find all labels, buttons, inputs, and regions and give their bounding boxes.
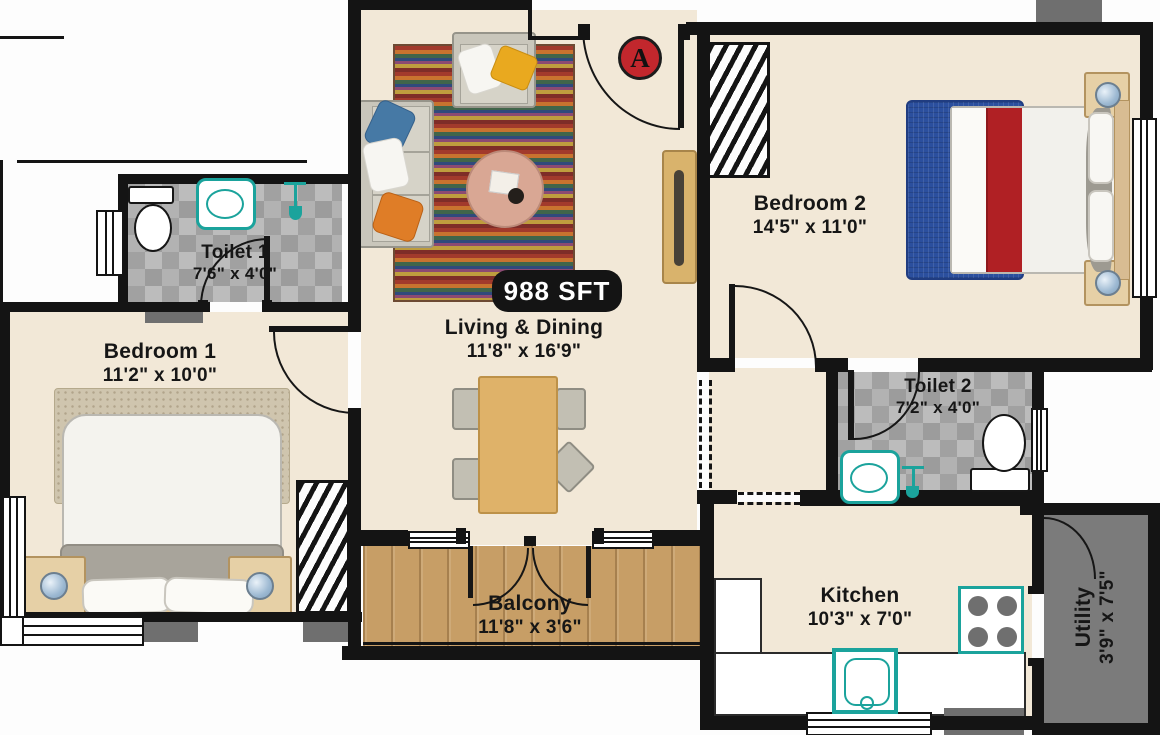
floor-plan: Toilet 1 7'6" x 4'0" Bedroom 1 11'2" x 1… [0, 0, 1160, 735]
bedroom2-window [1132, 118, 1157, 298]
boundary-line [17, 160, 307, 163]
passage-dashed-line [709, 380, 712, 488]
living-top-wall [350, 0, 532, 10]
foyer-floor [709, 368, 829, 492]
top-wall [686, 22, 1152, 35]
dining-table [478, 376, 558, 514]
balcony-door-post [456, 528, 466, 544]
entry-door-post [678, 24, 690, 40]
lamp-icon [1095, 82, 1121, 108]
toilet-bowl-icon [982, 414, 1026, 472]
shower-stem [294, 182, 297, 208]
bedroom1-label: Bedroom 1 11'2" x 10'0" [40, 340, 280, 387]
lamp-icon [1095, 270, 1121, 296]
room-dims: 7'2" x 4'0" [848, 398, 1028, 418]
bedroom1-top-wall-a [0, 302, 210, 312]
burner-icon [997, 627, 1017, 647]
room-dims: 11'2" x 10'0" [40, 365, 280, 387]
area-badge-text: 988 SFT [504, 276, 611, 307]
bed1-pillow [81, 576, 172, 615]
bedroom2-left-wall [697, 22, 710, 358]
bed2-headboard [1114, 100, 1130, 280]
burner-icon [997, 596, 1017, 616]
balcony-label: Balcony 11'8" x 3'6" [400, 592, 660, 639]
bedroom2-label: Bedroom 2 14'5" x 11'0" [690, 192, 930, 239]
toilet2-left-wall [826, 362, 838, 504]
room-dims: 10'3" x 7'0" [740, 609, 980, 631]
lamp-icon [40, 572, 68, 600]
bed2-pillow [1088, 190, 1114, 262]
sink-drain [860, 696, 874, 710]
toilet2-label: Toilet 2 7'2" x 4'0" [848, 376, 1028, 418]
room-name: Kitchen [740, 584, 980, 609]
utility-top-wall [1020, 503, 1160, 515]
living-left-wall-lower [348, 408, 361, 545]
living-balcony-wall-a [356, 530, 408, 546]
bedroom1-left-window [2, 496, 26, 618]
balcony-door-center-stub [524, 536, 536, 546]
bedroom1-bottom-window [22, 616, 144, 646]
balcony-rail-line [363, 642, 700, 645]
bedroom2-bottom-wall-a [697, 358, 735, 372]
toilet1-door-post [262, 300, 272, 312]
kitchen-sink-icon [832, 648, 898, 714]
shower-head [289, 206, 302, 220]
bed2-red-blanket [986, 108, 1022, 272]
room-name: Utility [1072, 537, 1097, 697]
toilet1-window [96, 210, 124, 276]
room-dims: 7'6" x 4'0" [132, 264, 338, 284]
bedroom1-balcony-divider [348, 545, 361, 660]
area-badge: 988 SFT [492, 270, 622, 312]
room-dims: 11'8" x 3'6" [400, 617, 660, 639]
bed2-sheet [952, 108, 988, 272]
toilet-icon [128, 186, 174, 204]
washbasin-icon [840, 450, 900, 504]
bedroom1-top-wall-b [264, 302, 350, 312]
toilet1-label: Toilet 1 7'6" x 4'0" [132, 242, 338, 284]
entry-notch-line-h [528, 36, 584, 40]
passage-stub-wall [697, 490, 737, 504]
dining-chair [556, 388, 586, 430]
entry-door-post [578, 24, 590, 40]
room-name: Toilet 1 [132, 242, 338, 264]
washbasin-bowl [206, 189, 244, 219]
wall-shade [1036, 0, 1102, 22]
toilet1-door-post [198, 300, 208, 312]
room-name: Bedroom 2 [690, 192, 930, 217]
room-dims: 11'8" x 16'9" [384, 341, 664, 363]
room-name: Bedroom 1 [40, 340, 280, 365]
kitchen-window [806, 712, 932, 735]
bed1-pillow [163, 576, 254, 615]
bed2-pillow [1088, 112, 1114, 184]
balcony-bottom-wall [342, 646, 714, 660]
console-slot [674, 170, 684, 266]
shower-stem [912, 466, 915, 488]
entrance-marker: A [618, 36, 662, 80]
room-dims: 3'9" x 7'5" [1097, 537, 1119, 697]
room-name: Balcony [400, 592, 660, 617]
kitchen-entry-dashed-line [738, 492, 800, 495]
entrance-marker-letter: A [630, 43, 650, 74]
lamp-icon [246, 572, 274, 600]
room-name: Toilet 2 [848, 376, 1028, 398]
washbasin-icon [196, 178, 256, 230]
balcony-door-post [594, 528, 604, 544]
window-end-cap [0, 616, 24, 646]
toilet2-vent-window [1031, 408, 1048, 472]
shower-head [906, 486, 919, 498]
bedroom1-wardrobe [296, 480, 350, 614]
living-dining-label: Living & Dining 11'8" x 16'9" [384, 316, 664, 363]
utility-label: Utility 3'9" x 7'5" [1031, 537, 1160, 697]
room-dims: 14'5" x 11'0" [690, 217, 930, 239]
boundary-line [0, 36, 64, 39]
utility-bottom-wall [1032, 723, 1160, 735]
kitchen-left-wall [700, 492, 714, 728]
coffee-table-bowl [508, 188, 524, 204]
kitchen-label: Kitchen 10'3" x 7'0" [740, 584, 980, 631]
room-name: Living & Dining [384, 316, 664, 341]
passage-dashed-line [699, 380, 702, 488]
living-left-wall-upper [348, 0, 361, 332]
entry-notch-line-v [528, 0, 532, 40]
kitchen-entry-dashed-line [738, 502, 800, 505]
bedroom2-wardrobe [706, 42, 770, 178]
washbasin-bowl [850, 463, 888, 493]
boundary-line [0, 160, 3, 305]
